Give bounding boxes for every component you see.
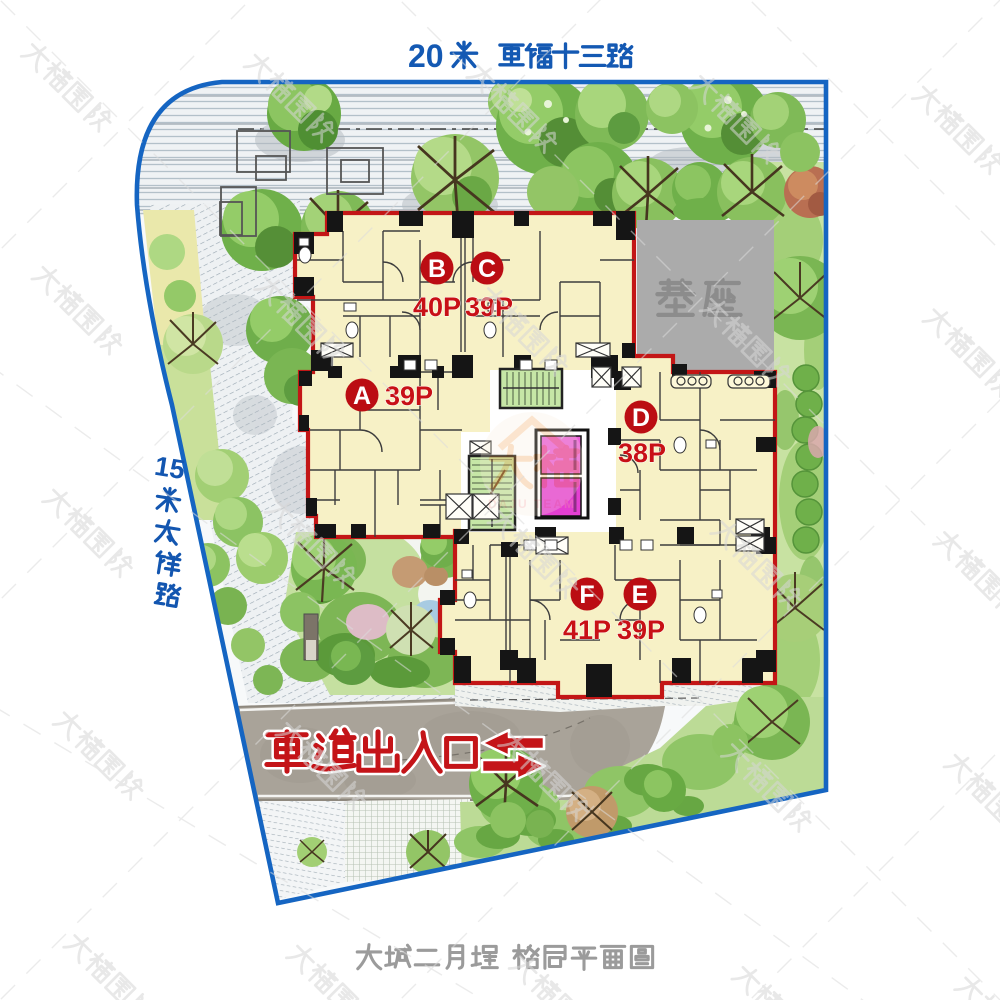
svg-text:F: F [579, 581, 594, 609]
svg-text:C: C [478, 255, 496, 283]
svg-text:20: 20 [408, 38, 444, 74]
svg-text:E: E [632, 581, 649, 609]
svg-text:A: A [353, 382, 371, 410]
svg-text:DAJU TEAM: DAJU TEAM [488, 497, 576, 511]
svg-text:B: B [428, 255, 446, 283]
svg-text:38P: 38P [618, 438, 666, 468]
svg-text:41P: 41P [563, 615, 611, 645]
svg-text:40P: 40P [413, 292, 461, 322]
svg-text:15: 15 [153, 451, 187, 485]
svg-text:39P: 39P [385, 381, 433, 411]
svg-text:D: D [632, 404, 650, 432]
